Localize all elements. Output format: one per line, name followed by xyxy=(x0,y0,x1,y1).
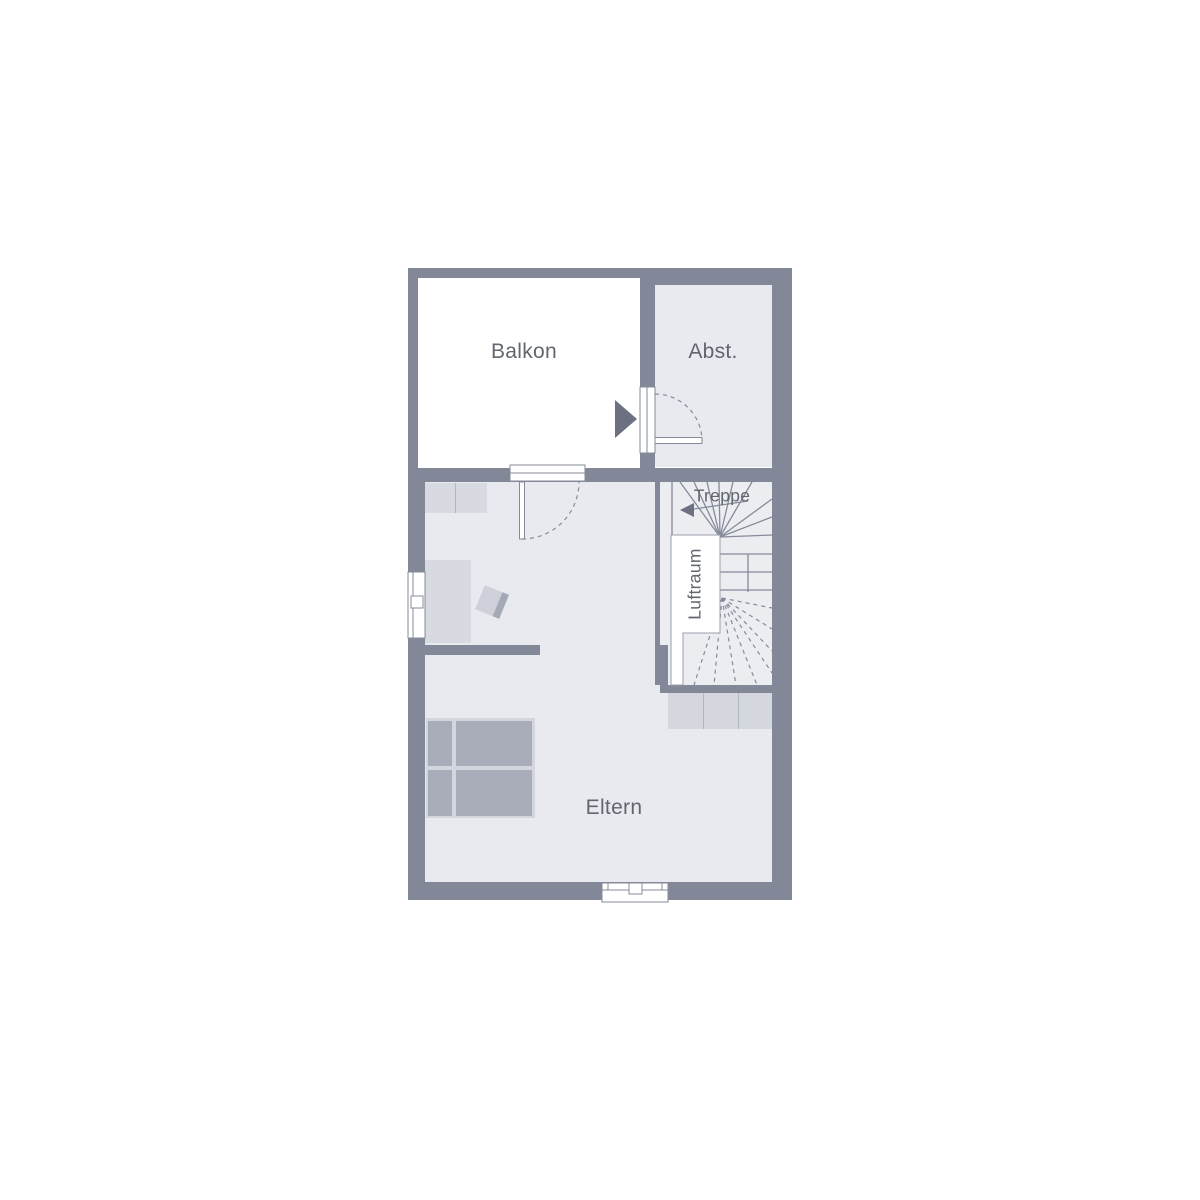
room-label-abst: Abst. xyxy=(688,340,737,364)
abst-door xyxy=(640,387,702,453)
window-left xyxy=(408,572,425,638)
room-label-treppe: Treppe xyxy=(694,486,751,507)
window-bottom xyxy=(602,883,668,902)
balcony-door xyxy=(510,465,585,539)
floorplan-symbols xyxy=(0,0,1200,1200)
room-label-luftraum: Luftraum xyxy=(685,548,706,619)
room-label-eltern: Eltern xyxy=(586,796,643,820)
room-label-balkon: Balkon xyxy=(491,340,557,364)
floor-plan: Balkon Abst. Treppe Luftraum Eltern xyxy=(0,0,1200,1200)
entrance-arrow xyxy=(615,400,637,438)
